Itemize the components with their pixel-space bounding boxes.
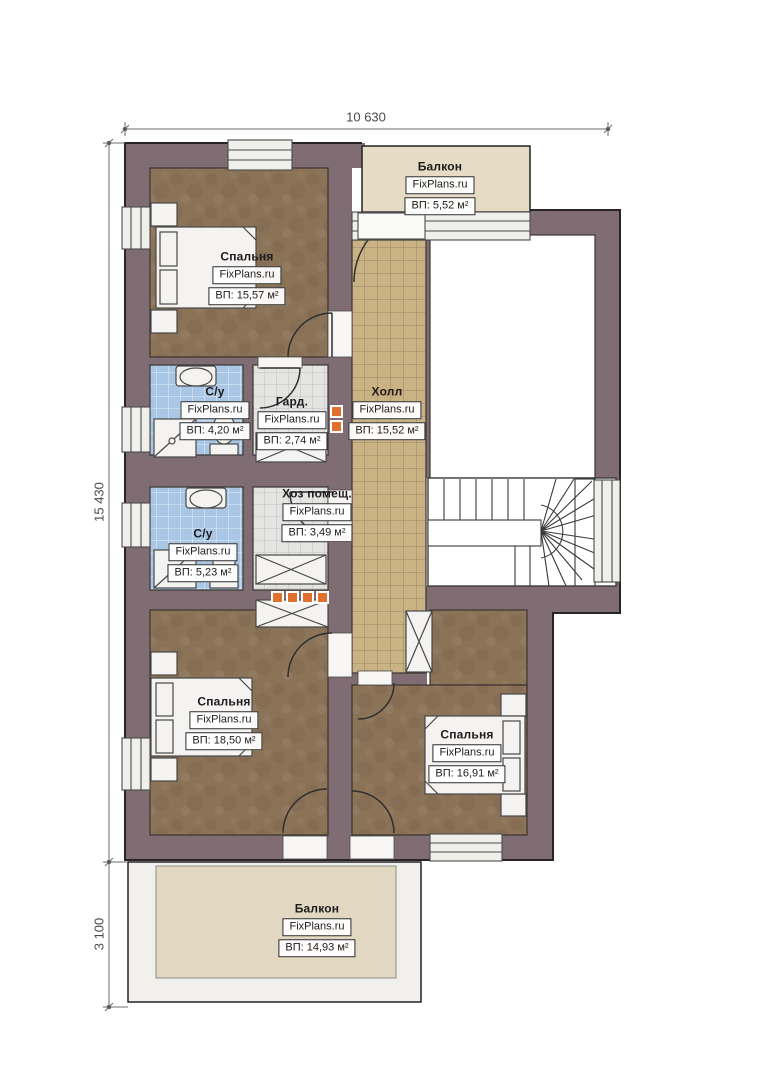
window-west-bathroom-upper <box>122 407 150 452</box>
floor-bedroom-bottom-right-upper <box>430 610 527 685</box>
window-band-balcony-top <box>352 212 530 240</box>
dimension-left-label: 15 430 <box>92 482 107 522</box>
floor-void <box>430 235 595 478</box>
window-west-bedroom-bottom <box>122 738 150 790</box>
window-west-bedroom-top <box>122 207 150 249</box>
staircase <box>428 478 616 586</box>
dimension-top-label: 10 630 <box>346 110 386 125</box>
floor-plan-drawing <box>0 0 763 1080</box>
window-north-bedroom <box>228 140 292 170</box>
floor-hall <box>352 240 426 673</box>
window-east-stairs <box>594 480 620 582</box>
balcony-bottom-structure <box>128 862 421 1002</box>
dimension-left-lower-label: 3 100 <box>92 918 107 951</box>
window-west-bathroom-lower <box>122 503 150 547</box>
window-south-bedroom-right <box>430 834 502 861</box>
floor-balcony-top <box>362 146 530 212</box>
floor-plan-page: 10 630 15 430 3 100 Спальня FixPlans.ru … <box>0 0 763 1080</box>
